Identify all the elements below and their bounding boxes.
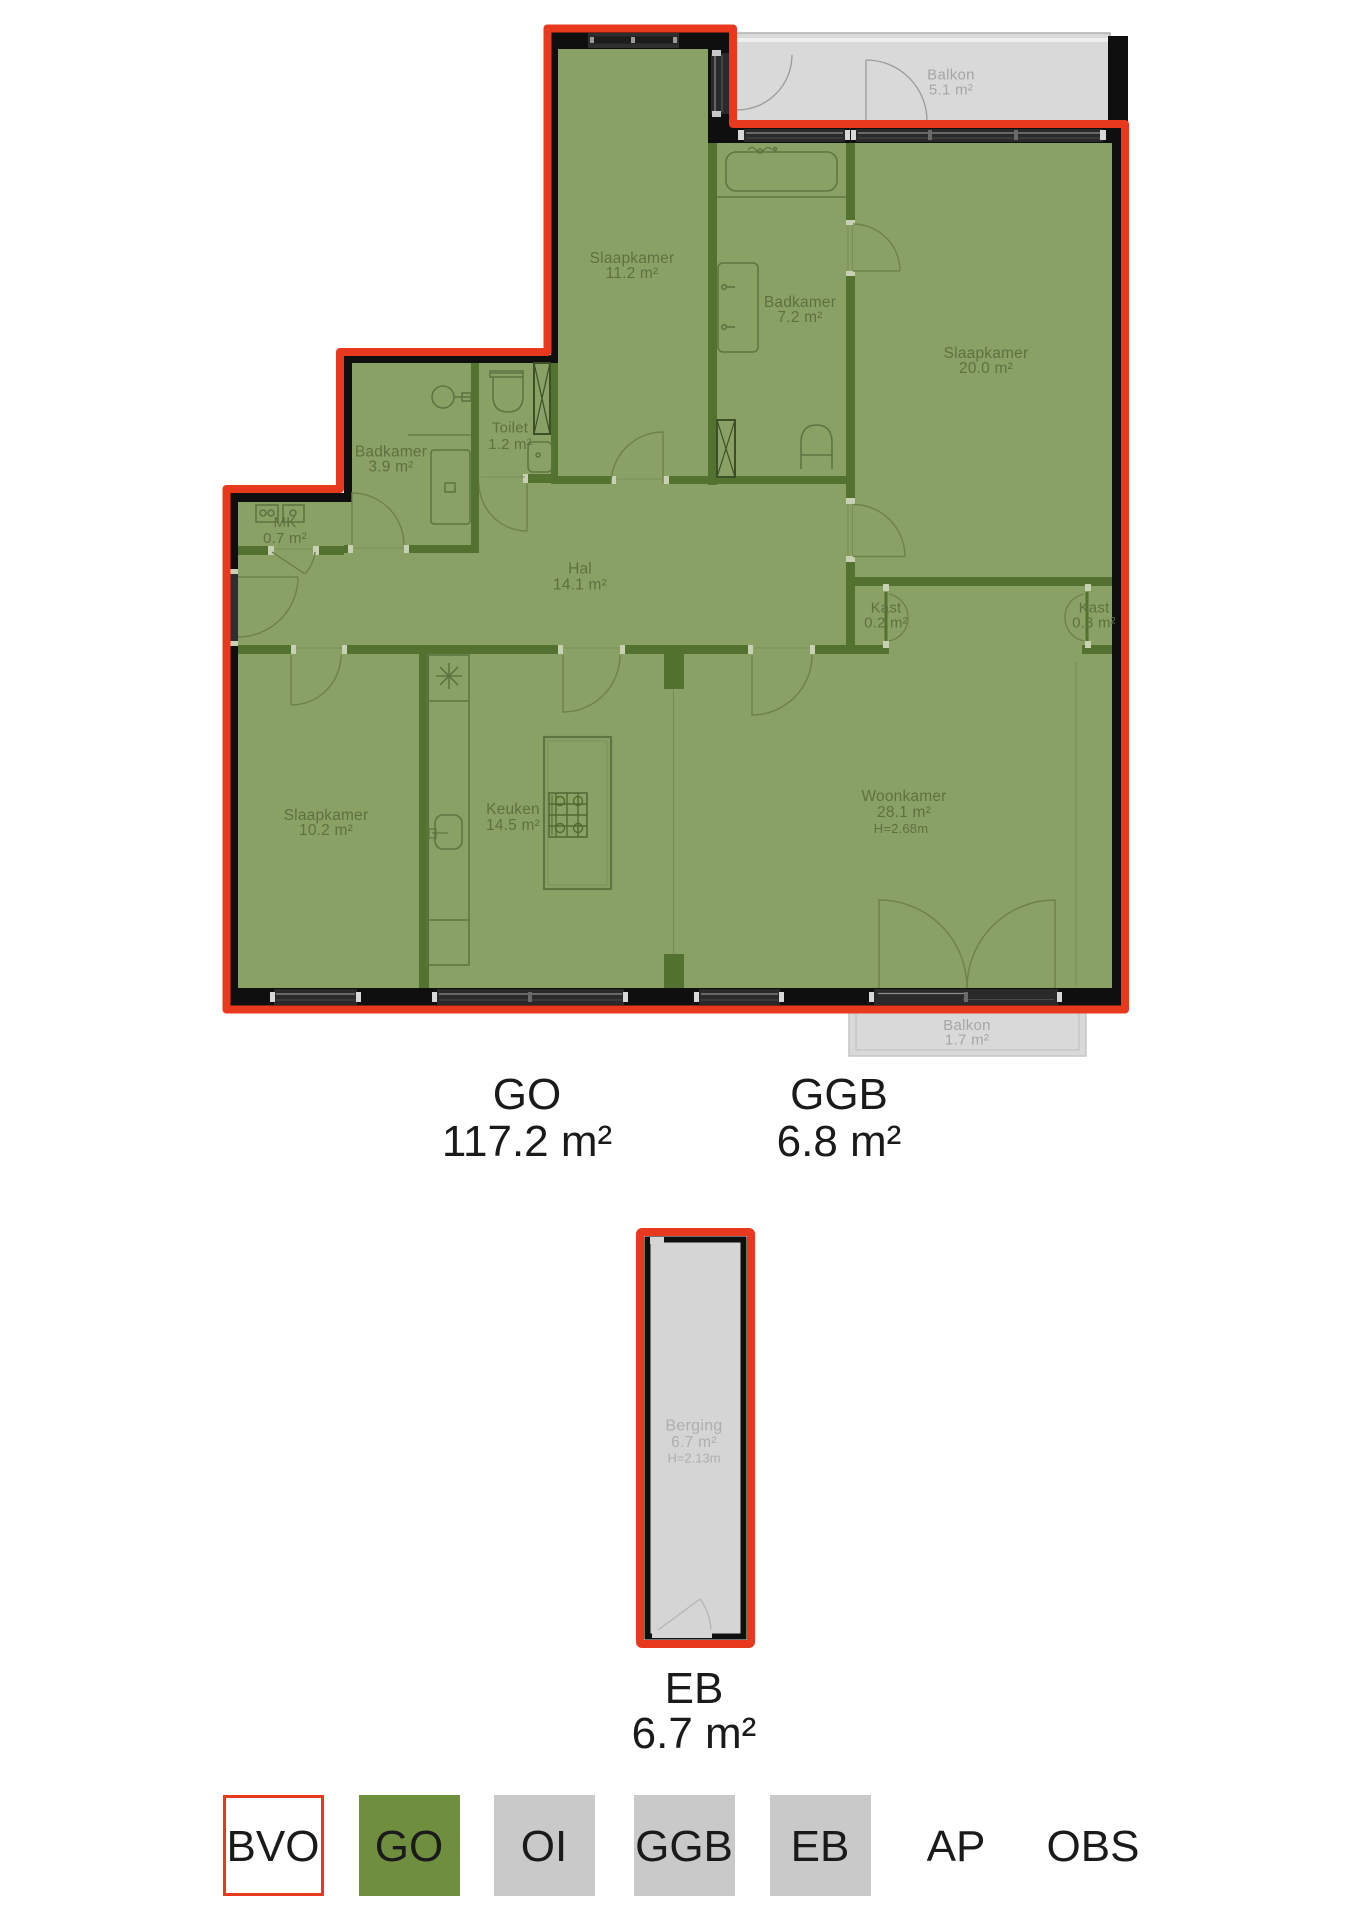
svg-text:14.5 m²: 14.5 m² [486,817,540,834]
svg-text:GGB: GGB [635,1822,733,1871]
svg-text:7.2 m²: 7.2 m² [777,309,822,326]
svg-text:6.8 m²: 6.8 m² [777,1117,902,1166]
svg-text:5.1 m²: 5.1 m² [929,82,973,99]
svg-text:117.2 m²: 117.2 m² [442,1117,612,1166]
svg-text:GO: GO [493,1070,561,1119]
svg-text:H=2.13m: H=2.13m [667,1451,720,1466]
svg-text:Keuken: Keuken [486,801,540,818]
svg-text:EB: EB [791,1822,850,1871]
svg-text:OBS: OBS [1047,1822,1140,1871]
svg-text:1.2 m²: 1.2 m² [488,436,532,453]
svg-text:AP: AP [927,1822,986,1871]
svg-text:1.7 m²: 1.7 m² [945,1032,989,1049]
svg-text:10.2 m²: 10.2 m² [299,822,353,839]
svg-text:Woonkamer: Woonkamer [861,788,946,805]
svg-text:0.2 m²: 0.2 m² [864,615,908,632]
svg-text:H=2.68m: H=2.68m [874,821,929,836]
svg-text:EB: EB [665,1664,724,1713]
svg-text:GO: GO [375,1822,443,1871]
svg-text:14.1 m²: 14.1 m² [553,577,607,594]
svg-text:OI: OI [521,1822,567,1871]
svg-text:MK: MK [274,514,297,531]
svg-text:6.7 m²: 6.7 m² [632,1709,757,1758]
svg-text:GGB: GGB [790,1070,888,1119]
svg-text:11.2 m²: 11.2 m² [606,265,659,282]
svg-text:Berging: Berging [665,1418,722,1435]
svg-text:0.7 m²: 0.7 m² [263,530,307,547]
svg-text:BVO: BVO [227,1822,320,1871]
svg-text:6.7 m²: 6.7 m² [671,1434,717,1451]
svg-text:3.9 m²: 3.9 m² [368,459,413,476]
svg-text:Hal: Hal [568,561,592,578]
svg-text:Toilet: Toilet [492,420,529,437]
svg-text:0.3 m²: 0.3 m² [1072,615,1116,632]
svg-text:20.0 m²: 20.0 m² [959,360,1013,377]
svg-text:28.1 m²: 28.1 m² [877,804,931,821]
